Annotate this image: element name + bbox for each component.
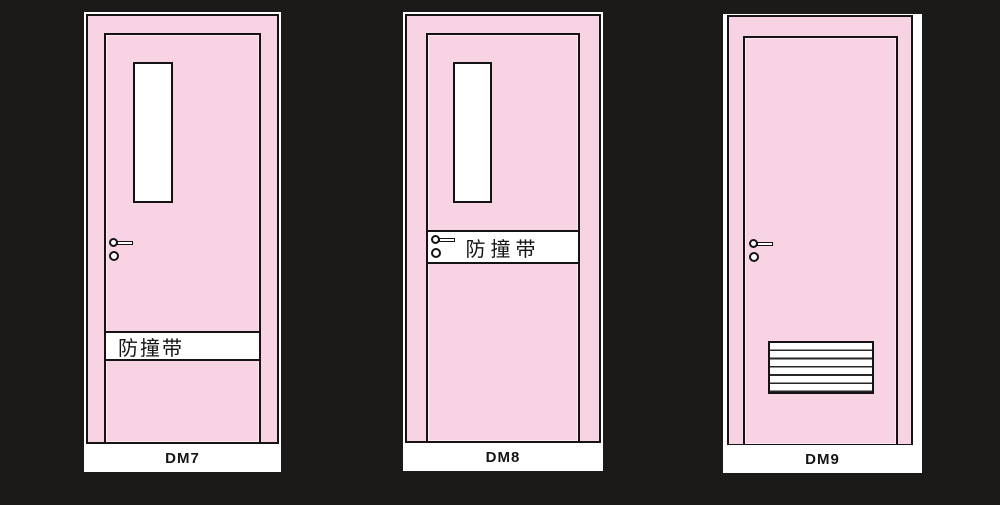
door-handle — [431, 235, 471, 263]
louver-vent — [768, 341, 874, 394]
door-handle — [749, 239, 789, 267]
door-code-label: DM8 — [403, 443, 603, 471]
door-dm8: 防撞带 — [405, 14, 601, 443]
impact-strip-label: 防撞带 — [118, 332, 184, 361]
door-window — [453, 62, 492, 203]
impact-strip: 防撞带 — [106, 331, 259, 361]
lever-bar-icon — [757, 242, 773, 246]
impact-strip-label: 防撞带 — [466, 233, 541, 262]
lock-knob-icon — [749, 252, 759, 262]
impact-strip: 防撞带 — [428, 230, 578, 264]
lock-knob-icon — [431, 248, 441, 258]
door-card-dm9: DM9 — [723, 14, 922, 473]
door-card-dm7: 防撞带 DM7 — [84, 12, 281, 472]
door-dm9 — [727, 15, 913, 446]
door-window — [133, 62, 173, 203]
door-code-label: DM7 — [84, 444, 281, 472]
door-card-dm8: 防撞带 DM8 — [403, 12, 603, 471]
lever-bar-icon — [439, 238, 455, 242]
door-handle — [109, 238, 149, 266]
door-dm7: 防撞带 — [86, 14, 279, 444]
door-code-label: DM9 — [723, 445, 922, 473]
door-panel: 防撞带 — [426, 33, 580, 441]
lever-bar-icon — [117, 241, 133, 245]
lock-knob-icon — [109, 251, 119, 261]
drawing-background: 防撞带 DM7 防撞带 — [0, 0, 1000, 505]
